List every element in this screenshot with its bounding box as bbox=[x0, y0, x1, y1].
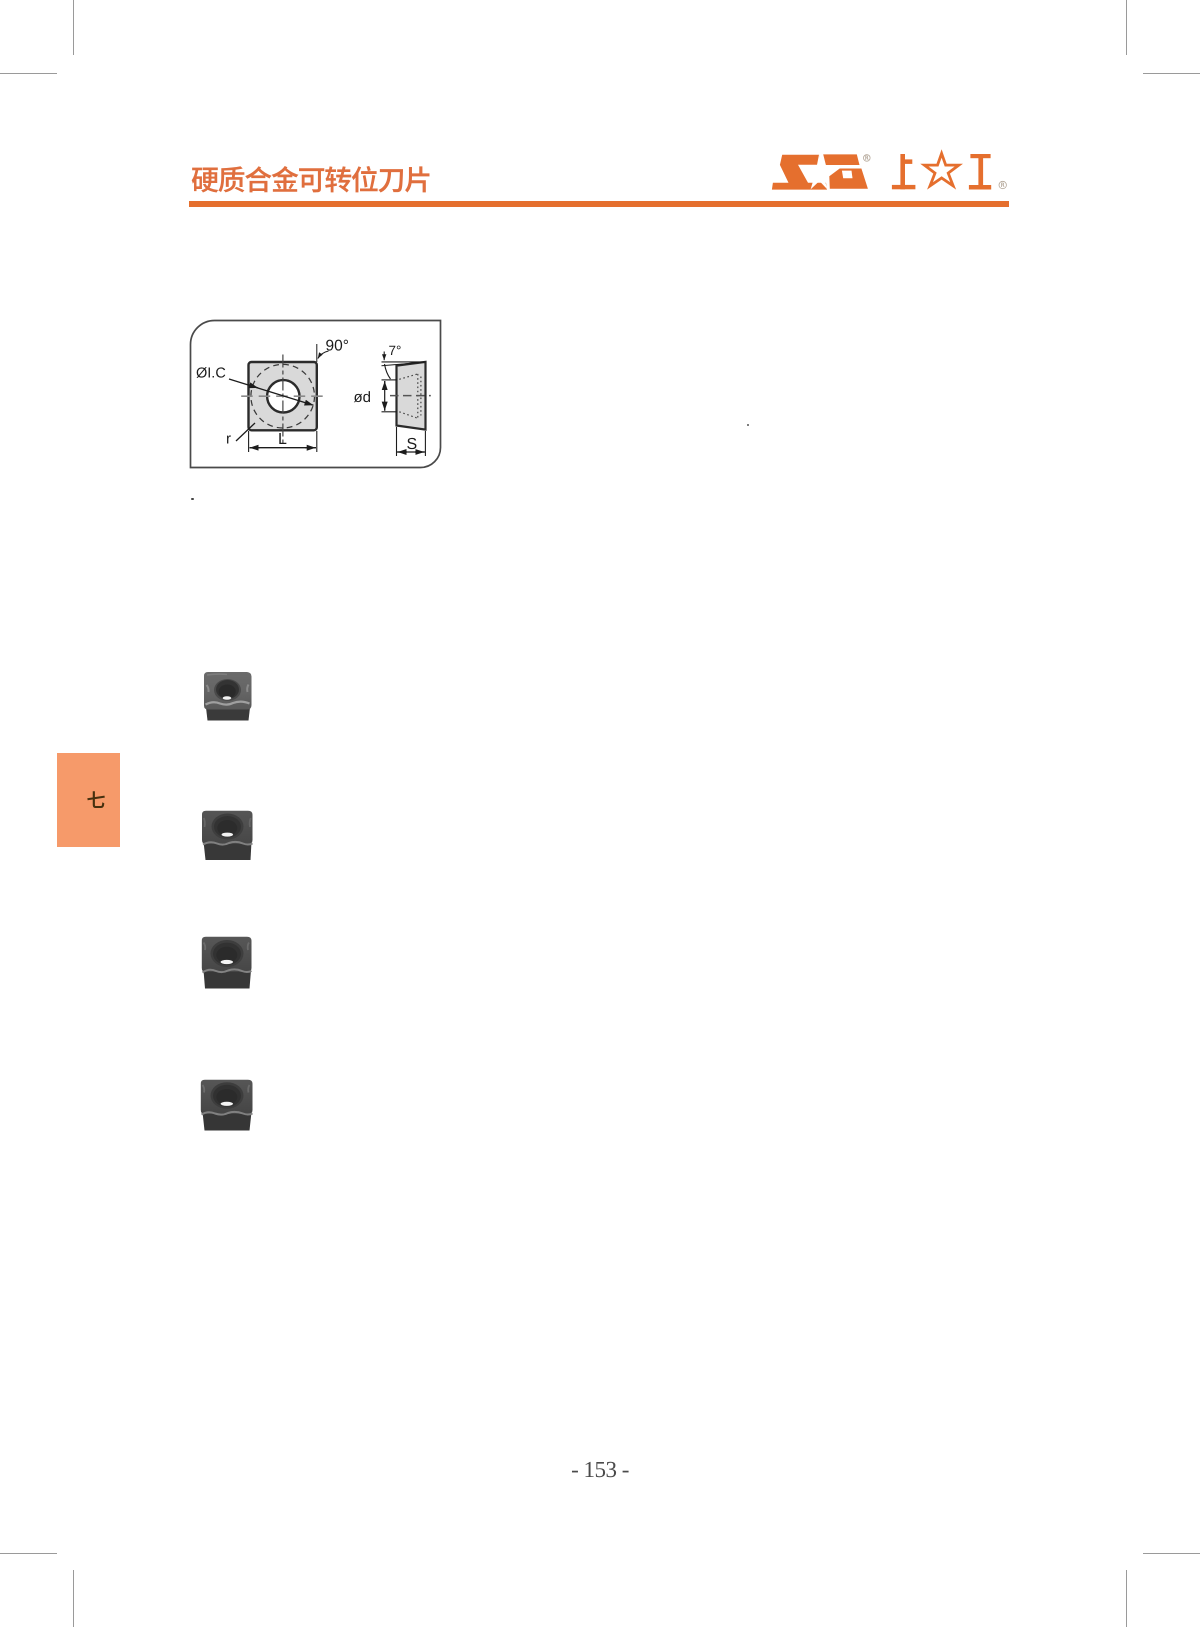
svg-text:L: L bbox=[278, 431, 287, 448]
svg-text:ød: ød bbox=[353, 389, 371, 406]
svg-text:S: S bbox=[406, 436, 417, 453]
svg-text:90°: 90° bbox=[325, 338, 348, 355]
svg-text:r: r bbox=[226, 431, 231, 448]
svg-text:ØI.C: ØI.C bbox=[196, 366, 226, 382]
svg-text:7°: 7° bbox=[388, 343, 401, 358]
